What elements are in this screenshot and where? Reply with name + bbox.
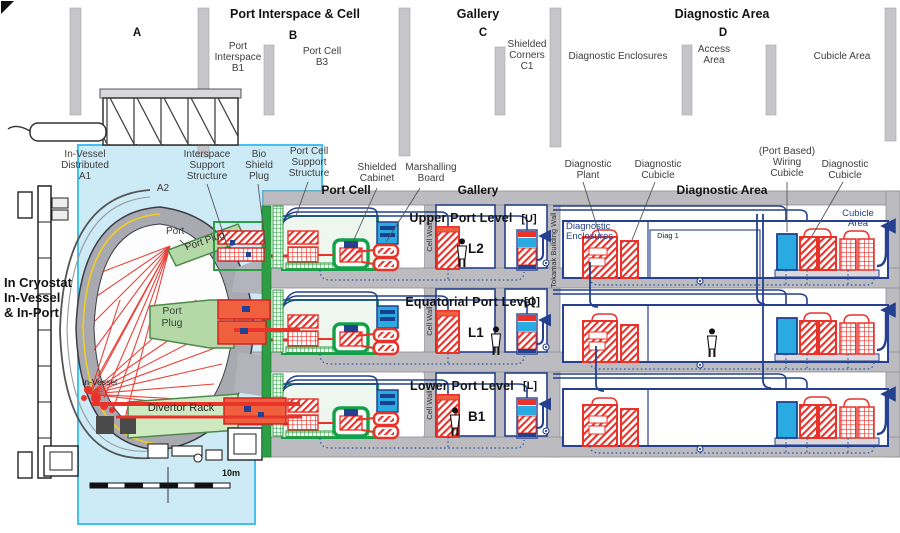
- label-cell-wall-upper: Cell Wall: [426, 217, 434, 257]
- section-header-port-cell: Port Cell: [321, 184, 370, 197]
- label-diagnostic-enclosures-room: Diagnostic Enclosures: [566, 222, 613, 243]
- column-c: C: [479, 27, 487, 40]
- label-scale-10m: 10m: [222, 469, 240, 479]
- label-cubicle-area-top: Cubicle Area: [814, 51, 871, 62]
- row-code-upper: L2: [468, 242, 484, 257]
- callout-marshalling-board: Marshalling Board: [405, 162, 456, 184]
- callout-in-vessel-distributed-a1: In-Vessel Distributed A1: [61, 149, 109, 182]
- callout-port-based-wiring-cubicle: (Port Based) Wiring Cubicle: [759, 146, 815, 179]
- label-port-plug-equatorial: Port Plug: [161, 306, 182, 329]
- row-code-equatorial: L1: [468, 326, 484, 341]
- label-port-interspace-b1: Port Interspace B1: [215, 41, 262, 74]
- zone-title-diagnostic-area: Diagnostic Area: [675, 8, 770, 22]
- diagram-canvas: [0, 0, 900, 533]
- column-a: A: [133, 27, 141, 40]
- section-header-gallery: Gallery: [458, 184, 499, 197]
- label-cell-wall-equatorial: Cell Wall: [426, 301, 434, 341]
- label-cell-wall-lower: Cell Wall: [426, 385, 434, 425]
- label-access-area: Access Area: [698, 44, 730, 66]
- callout-diagnostic-plant: Diagnostic Plant: [565, 159, 612, 181]
- label-in-cryostat: In Cryostat In-Vessel & In-Port: [4, 276, 72, 321]
- diagram-root: Port Interspace & Cell A B Port Interspa…: [0, 0, 900, 533]
- zone-title-gallery: Gallery: [457, 8, 499, 22]
- column-d: D: [719, 27, 727, 40]
- callout-diagnostic-cubicle-right: Diagnostic Cubicle: [822, 159, 869, 181]
- callout-port-cell-support-structure: Port Cell Support Structure: [289, 146, 330, 179]
- row-code-lower: B1: [468, 410, 485, 425]
- label-divertor-rack: Divertor Rack: [148, 402, 215, 414]
- label-port-cell-b3: Port Cell B3: [303, 46, 341, 68]
- column-b: B: [289, 30, 297, 43]
- label-diagnostic-enclosures-top: Diagnostic Enclosures: [569, 51, 668, 62]
- corner-code-equatorial: [Q]: [524, 296, 540, 308]
- label-shielded-corners-c1: Shielded Corners C1: [508, 39, 547, 72]
- callout-a2: A2: [157, 183, 169, 194]
- callout-shielded-cabinet: Shielded Cabinet: [358, 162, 397, 184]
- corner-code-upper: [U]: [521, 213, 536, 225]
- callout-bio-shield-plug: Bio Shield Plug: [245, 149, 273, 182]
- section-header-diagnostic-area: Diagnostic Area: [677, 184, 768, 197]
- label-port: Port: [166, 226, 184, 237]
- label-diag1: Diag 1: [657, 232, 679, 240]
- transfer-cask: [30, 123, 106, 141]
- label-in-vessel: In-Vessel: [82, 378, 117, 387]
- label-tokamak-building-wall: Tokamak Building Wall: [550, 208, 558, 292]
- callout-diagnostic-cubicle-left: Diagnostic Cubicle: [635, 159, 682, 181]
- corner-code-lower: [L]: [523, 380, 537, 392]
- corner-marker-icon: [1, 1, 14, 14]
- label-cubicle-area-room: Cubicle Area: [842, 209, 874, 230]
- zone-title-port-interspace-cell: Port Interspace & Cell: [230, 8, 360, 22]
- callout-interspace-support-structure: Interspace Support Structure: [184, 149, 231, 182]
